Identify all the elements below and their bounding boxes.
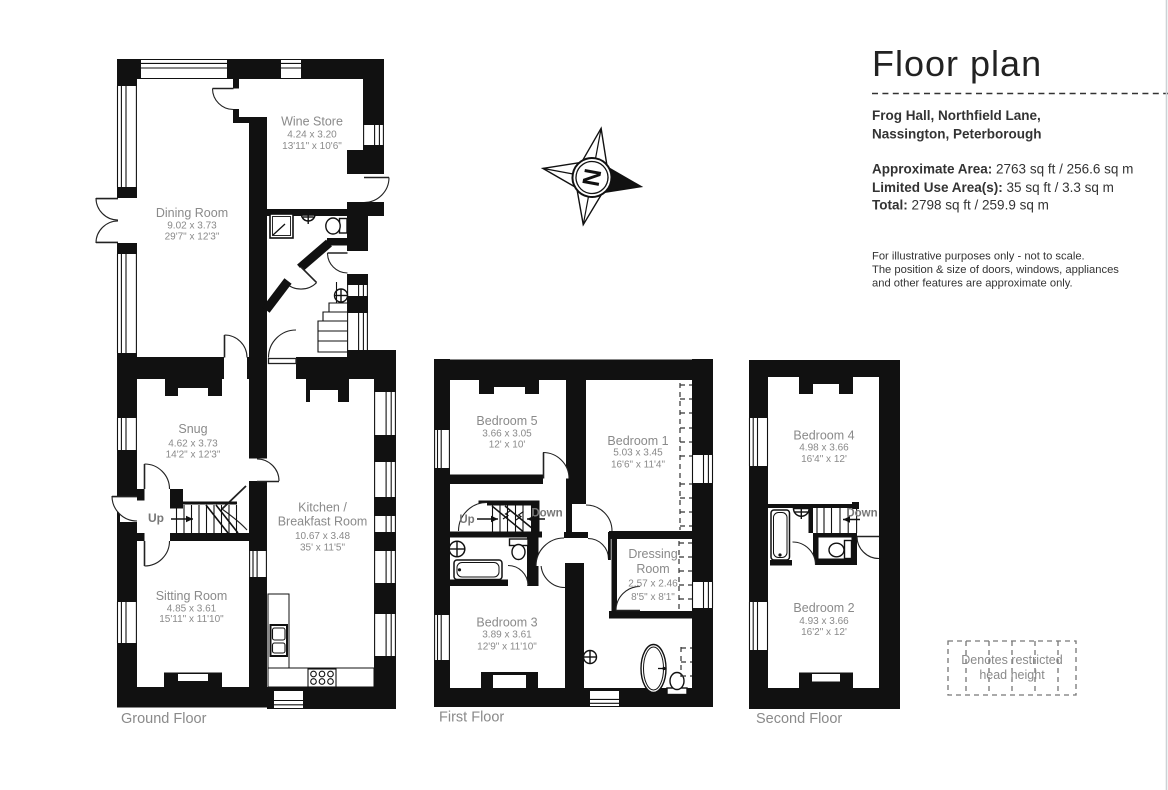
svg-text:Bedroom 3: Bedroom 3 (476, 616, 537, 630)
svg-text:4.98 x 3.66: 4.98 x 3.66 (799, 443, 849, 454)
svg-text:Bedroom 4: Bedroom 4 (793, 429, 854, 443)
svg-text:8'5" x 8'1": 8'5" x 8'1" (631, 592, 675, 603)
svg-text:29'7" x 12'3": 29'7" x 12'3" (165, 232, 220, 243)
svg-text:Limited Use Area(s): 35 sq ft: Limited Use Area(s): 35 sq ft / 3.3 sq m (872, 180, 1114, 195)
svg-text:12'9" x 11'10": 12'9" x 11'10" (477, 642, 537, 653)
svg-text:35' x 11'5": 35' x 11'5" (300, 543, 345, 554)
svg-text:Second Floor: Second Floor (756, 711, 842, 727)
svg-text:Down: Down (531, 508, 562, 520)
svg-text:16'6" x 11'4": 16'6" x 11'4" (611, 460, 666, 471)
svg-text:12' x 10': 12' x 10' (489, 440, 526, 451)
svg-text:3.66 x 3.05: 3.66 x 3.05 (482, 429, 532, 440)
svg-text:14'2" x 12'3": 14'2" x 12'3" (166, 450, 221, 461)
svg-text:5.03 x 3.45: 5.03 x 3.45 (613, 448, 663, 459)
svg-text:9.02 x 3.73: 9.02 x 3.73 (167, 221, 217, 232)
svg-text:Total: 2798 sq ft / 259.9 sq m: Total: 2798 sq ft / 259.9 sq m (872, 198, 1049, 213)
svg-text:Bedroom 5: Bedroom 5 (476, 414, 537, 428)
svg-text:13'11" x 10'6": 13'11" x 10'6" (282, 141, 342, 152)
svg-text:Dressing: Dressing (628, 547, 677, 561)
svg-text:16'4" x 12': 16'4" x 12' (801, 454, 847, 465)
svg-text:Denotes restricted: Denotes restricted (961, 653, 1062, 667)
svg-text:Ground Floor: Ground Floor (121, 711, 207, 727)
svg-text:Wine Store: Wine Store (281, 115, 343, 129)
svg-text:The position & size of doors,: The position & size of doors, windows, a… (872, 264, 1119, 276)
svg-text:4.93 x 3.66: 4.93 x 3.66 (799, 616, 849, 627)
svg-text:15'11" x 11'10": 15'11" x 11'10" (159, 614, 224, 625)
svg-text:Frog Hall, Northfield Lane,: Frog Hall, Northfield Lane, (872, 108, 1041, 123)
svg-text:2.57 x 2.46: 2.57 x 2.46 (628, 579, 678, 590)
svg-text:Approximate Area: 2763 sq ft /: Approximate Area: 2763 sq ft / 256.6 sq … (872, 162, 1133, 177)
svg-text:Dining Room: Dining Room (156, 206, 228, 220)
svg-text:Down: Down (846, 508, 877, 520)
svg-text:10.67 x 3.48: 10.67 x 3.48 (295, 531, 350, 542)
svg-text:For illustrative purposes only: For illustrative purposes only - not to … (872, 251, 1085, 263)
svg-text:Up: Up (459, 514, 474, 526)
svg-text:Room: Room (636, 562, 669, 576)
svg-text:Floor plan: Floor plan (872, 43, 1042, 84)
svg-text:Up: Up (148, 511, 164, 525)
svg-text:First Floor: First Floor (439, 710, 504, 726)
svg-text:head height: head height (979, 668, 1045, 682)
svg-text:Sitting Room: Sitting Room (156, 589, 228, 603)
svg-text:4.85 x 3.61: 4.85 x 3.61 (167, 604, 217, 615)
svg-text:Nassington, Peterborough: Nassington, Peterborough (872, 127, 1042, 142)
svg-text:4.62 x 3.73: 4.62 x 3.73 (168, 439, 218, 450)
svg-text:Bedroom 1: Bedroom 1 (607, 434, 668, 448)
svg-text:and other features are approxi: and other features are approximate only. (872, 278, 1073, 290)
svg-text:4.24 x 3.20: 4.24 x 3.20 (287, 130, 337, 141)
svg-text:Breakfast Room: Breakfast Room (278, 515, 368, 529)
svg-text:Snug: Snug (178, 422, 207, 436)
svg-text:Kitchen /: Kitchen / (298, 501, 347, 515)
svg-text:3.89 x 3.61: 3.89 x 3.61 (482, 630, 532, 641)
svg-text:16'2" x 12': 16'2" x 12' (801, 627, 847, 638)
svg-text:Bedroom 2: Bedroom 2 (793, 601, 854, 615)
